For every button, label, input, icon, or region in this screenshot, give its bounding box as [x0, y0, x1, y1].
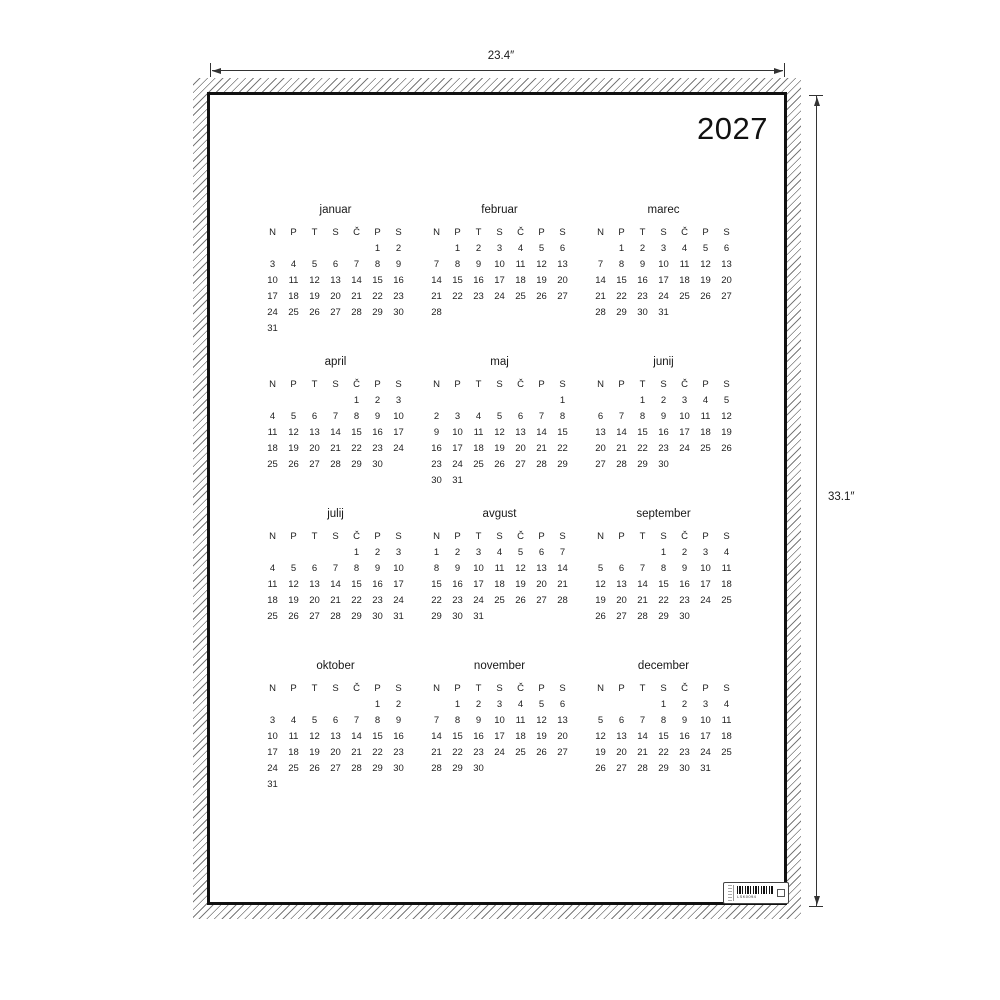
week-row: 9101112131415 — [426, 425, 573, 441]
day-cell: 10 — [489, 257, 510, 273]
day-cell: 16 — [468, 729, 489, 745]
day-cell: 17 — [447, 441, 468, 457]
empty-day-cell — [611, 545, 632, 561]
empty-day-cell — [304, 545, 325, 561]
day-cell: 23 — [367, 441, 388, 457]
week-row: 27282930 — [590, 457, 737, 473]
month-title: junij — [590, 355, 737, 369]
weekday-label: S — [552, 377, 573, 393]
week-row: 31 — [262, 777, 409, 793]
day-cell: 24 — [262, 761, 283, 777]
weekday-label: S — [388, 225, 409, 241]
day-cell: 20 — [552, 729, 573, 745]
day-cell: 20 — [325, 745, 346, 761]
day-cell: 18 — [510, 729, 531, 745]
day-cell: 19 — [283, 593, 304, 609]
day-cell: 15 — [611, 273, 632, 289]
day-cell: 22 — [653, 745, 674, 761]
day-cell: 26 — [304, 761, 325, 777]
day-cell: 1 — [611, 241, 632, 257]
day-cell: 6 — [531, 545, 552, 561]
day-cell: 21 — [346, 745, 367, 761]
barcode-icon — [737, 886, 774, 894]
day-cell: 3 — [695, 545, 716, 561]
weekday-label: S — [653, 377, 674, 393]
day-cell: 15 — [367, 729, 388, 745]
day-cell: 3 — [489, 697, 510, 713]
day-cell: 30 — [674, 761, 695, 777]
day-cell: 23 — [447, 593, 468, 609]
day-cell: 3 — [262, 713, 283, 729]
day-cell: 12 — [695, 257, 716, 273]
day-cell: 12 — [283, 577, 304, 593]
weekday-label: T — [632, 529, 653, 545]
day-cell: 6 — [611, 713, 632, 729]
week-row: 12345 — [590, 393, 737, 409]
weekday-header-row: NPTSČPS — [426, 529, 573, 545]
day-cell: 11 — [283, 729, 304, 745]
day-cell: 19 — [304, 289, 325, 305]
month-title: november — [426, 659, 573, 673]
weekday-label: S — [716, 681, 737, 697]
empty-day-cell — [304, 321, 325, 337]
empty-day-cell — [590, 545, 611, 561]
day-cell: 8 — [552, 409, 573, 425]
width-dimension-tick-right — [784, 63, 785, 77]
weekday-label: N — [262, 681, 283, 697]
week-row: 123456 — [426, 241, 573, 257]
weekday-label: N — [426, 529, 447, 545]
day-cell: 11 — [489, 561, 510, 577]
day-cell: 4 — [510, 241, 531, 257]
day-cell: 10 — [447, 425, 468, 441]
day-cell: 4 — [283, 713, 304, 729]
weekday-label: P — [447, 225, 468, 241]
day-cell: 18 — [262, 593, 283, 609]
weekday-label: T — [304, 681, 325, 697]
day-cell: 9 — [426, 425, 447, 441]
weekday-label: S — [716, 529, 737, 545]
week-row: 252627282930 — [262, 457, 409, 473]
day-cell: 28 — [632, 609, 653, 625]
day-cell: 7 — [632, 561, 653, 577]
day-cell: 2 — [468, 241, 489, 257]
week-row: 14151617181920 — [426, 273, 573, 289]
day-cell: 1 — [346, 393, 367, 409]
day-cell: 13 — [611, 729, 632, 745]
day-cell: 31 — [468, 609, 489, 625]
day-cell: 20 — [304, 441, 325, 457]
day-cell: 5 — [510, 545, 531, 561]
day-cell: 3 — [695, 697, 716, 713]
day-cell: 25 — [716, 593, 737, 609]
day-cell: 1 — [632, 393, 653, 409]
day-cell: 21 — [590, 289, 611, 305]
day-cell: 29 — [447, 761, 468, 777]
empty-day-cell — [510, 305, 531, 321]
empty-day-cell — [346, 321, 367, 337]
week-row: 45678910 — [262, 561, 409, 577]
day-cell: 16 — [674, 729, 695, 745]
weekday-label: Č — [674, 529, 695, 545]
weekday-label: Č — [674, 681, 695, 697]
month-title: oktober — [262, 659, 409, 673]
week-row: 123 — [262, 393, 409, 409]
day-cell: 18 — [262, 441, 283, 457]
weekday-label: S — [325, 225, 346, 241]
day-cell: 30 — [426, 473, 447, 489]
empty-day-cell — [447, 305, 468, 321]
day-cell: 22 — [426, 593, 447, 609]
week-row: 123456 — [590, 241, 737, 257]
day-cell: 14 — [531, 425, 552, 441]
empty-day-cell — [388, 777, 409, 793]
month-title: julij — [262, 507, 409, 521]
empty-day-cell — [674, 305, 695, 321]
empty-day-cell — [695, 305, 716, 321]
weekday-label: P — [447, 377, 468, 393]
day-cell: 14 — [346, 273, 367, 289]
day-cell: 21 — [426, 289, 447, 305]
day-cell: 24 — [489, 289, 510, 305]
week-row: 2345678 — [426, 409, 573, 425]
weekday-label: S — [325, 377, 346, 393]
week-row: 18192021222324 — [262, 593, 409, 609]
day-cell: 14 — [346, 729, 367, 745]
month-calendar-marec: marecNPTSČPS1234567891011121314151617181… — [590, 203, 737, 355]
day-cell: 15 — [447, 729, 468, 745]
weekday-label: Č — [674, 377, 695, 393]
day-cell: 27 — [531, 593, 552, 609]
day-cell: 7 — [426, 257, 447, 273]
day-cell: 28 — [611, 457, 632, 473]
day-cell: 30 — [367, 457, 388, 473]
day-cell: 10 — [262, 273, 283, 289]
empty-day-cell — [489, 305, 510, 321]
day-cell: 28 — [346, 761, 367, 777]
day-cell: 10 — [468, 561, 489, 577]
day-cell: 12 — [590, 577, 611, 593]
month-title: februar — [426, 203, 573, 217]
day-cell: 29 — [632, 457, 653, 473]
week-row: 12 — [262, 697, 409, 713]
day-cell: 12 — [489, 425, 510, 441]
day-cell: 4 — [489, 545, 510, 561]
day-cell: 17 — [489, 729, 510, 745]
day-cell: 13 — [716, 257, 737, 273]
weekday-label: T — [632, 681, 653, 697]
day-cell: 19 — [510, 577, 531, 593]
weekday-header-row: NPTSČPS — [262, 225, 409, 241]
month-title: avgust — [426, 507, 573, 521]
day-cell: 16 — [388, 729, 409, 745]
cert-mark-icon — [777, 889, 785, 897]
day-cell: 25 — [716, 745, 737, 761]
day-cell: 10 — [674, 409, 695, 425]
day-cell: 1 — [653, 697, 674, 713]
day-cell: 13 — [590, 425, 611, 441]
arrow-right-icon — [774, 68, 783, 74]
empty-day-cell — [510, 609, 531, 625]
day-cell: 25 — [283, 761, 304, 777]
day-cell: 29 — [653, 609, 674, 625]
week-row: 25262728293031 — [262, 609, 409, 625]
empty-day-cell — [262, 545, 283, 561]
empty-day-cell — [489, 393, 510, 409]
day-cell: 4 — [283, 257, 304, 273]
week-row: 3456789 — [262, 713, 409, 729]
weekday-label: P — [611, 377, 632, 393]
weekday-header-row: NPTSČPS — [426, 377, 573, 393]
empty-day-cell — [716, 457, 737, 473]
weekday-label: Č — [346, 529, 367, 545]
day-cell: 17 — [468, 577, 489, 593]
day-cell: 3 — [447, 409, 468, 425]
day-cell: 22 — [346, 593, 367, 609]
weekday-label: P — [283, 529, 304, 545]
day-cell: 12 — [304, 273, 325, 289]
day-cell: 29 — [367, 305, 388, 321]
calendar-poster: 2027 januarNPTSČPS1234567891011121314151… — [207, 92, 787, 905]
day-cell: 28 — [426, 761, 447, 777]
day-cell: 10 — [695, 713, 716, 729]
day-cell: 19 — [590, 593, 611, 609]
day-cell: 23 — [388, 289, 409, 305]
weekday-label: N — [590, 225, 611, 241]
day-cell: 11 — [262, 577, 283, 593]
day-cell: 22 — [632, 441, 653, 457]
day-cell: 7 — [632, 713, 653, 729]
week-row: 45678910 — [262, 409, 409, 425]
day-cell: 16 — [447, 577, 468, 593]
day-cell: 25 — [674, 289, 695, 305]
empty-day-cell — [468, 473, 489, 489]
weekday-label: N — [262, 529, 283, 545]
day-cell: 17 — [489, 273, 510, 289]
day-cell: 7 — [346, 713, 367, 729]
calendar-mockup-canvas: 23.4″ 33.1″ 2027 januarNPTSČPS1234567891… — [0, 0, 1000, 1000]
day-cell: 27 — [590, 457, 611, 473]
day-cell: 20 — [325, 289, 346, 305]
day-cell: 9 — [468, 257, 489, 273]
week-row: 13141516171819 — [590, 425, 737, 441]
weekday-label: T — [468, 225, 489, 241]
empty-day-cell — [510, 393, 531, 409]
day-cell: 30 — [447, 609, 468, 625]
day-cell: 7 — [531, 409, 552, 425]
day-cell: 7 — [552, 545, 573, 561]
day-cell: 17 — [695, 577, 716, 593]
week-row: 123456 — [426, 697, 573, 713]
day-cell: 14 — [426, 273, 447, 289]
week-row: 16171819202122 — [426, 441, 573, 457]
day-cell: 29 — [552, 457, 573, 473]
day-cell: 4 — [262, 561, 283, 577]
day-cell: 11 — [262, 425, 283, 441]
day-cell: 21 — [552, 577, 573, 593]
day-cell: 17 — [262, 289, 283, 305]
day-cell: 21 — [325, 593, 346, 609]
weekday-label: S — [653, 681, 674, 697]
empty-day-cell — [674, 457, 695, 473]
day-cell: 31 — [447, 473, 468, 489]
day-cell: 9 — [367, 409, 388, 425]
day-cell: 15 — [426, 577, 447, 593]
day-cell: 23 — [468, 745, 489, 761]
day-cell: 14 — [325, 425, 346, 441]
label-code: LSK0094 — [737, 894, 774, 900]
empty-day-cell — [325, 697, 346, 713]
weekday-header-row: NPTSČPS — [262, 377, 409, 393]
day-cell: 5 — [283, 561, 304, 577]
day-cell: 26 — [510, 593, 531, 609]
weekday-label: S — [552, 681, 573, 697]
empty-day-cell — [262, 393, 283, 409]
month-title: december — [590, 659, 737, 673]
day-cell: 6 — [611, 561, 632, 577]
day-cell: 14 — [552, 561, 573, 577]
day-cell: 30 — [632, 305, 653, 321]
weekday-label: S — [716, 225, 737, 241]
day-cell: 18 — [674, 273, 695, 289]
day-cell: 29 — [611, 305, 632, 321]
arrow-down-icon — [814, 896, 820, 905]
day-cell: 3 — [653, 241, 674, 257]
day-cell: 26 — [283, 609, 304, 625]
weekday-label: S — [489, 681, 510, 697]
week-row: 21222324252627 — [426, 289, 573, 305]
day-cell: 17 — [674, 425, 695, 441]
day-cell: 26 — [283, 457, 304, 473]
month-calendar-september: septemberNPTSČPS123456789101112131415161… — [590, 507, 737, 659]
week-row: 293031 — [426, 609, 573, 625]
day-cell: 2 — [468, 697, 489, 713]
height-dimension-label: 33.1″ — [824, 491, 858, 503]
day-cell: 8 — [632, 409, 653, 425]
day-cell: 9 — [653, 409, 674, 425]
weekday-label: S — [489, 225, 510, 241]
week-row: 12131415161718 — [590, 729, 737, 745]
day-cell: 28 — [426, 305, 447, 321]
weekday-label: P — [611, 225, 632, 241]
day-cell: 2 — [674, 545, 695, 561]
day-cell: 19 — [304, 745, 325, 761]
day-cell: 12 — [283, 425, 304, 441]
empty-day-cell — [468, 305, 489, 321]
day-cell: 4 — [695, 393, 716, 409]
day-cell: 15 — [447, 273, 468, 289]
month-calendar-februar: februarNPTSČPS12345678910111213141516171… — [426, 203, 573, 355]
month-title: marec — [590, 203, 737, 217]
weekday-label: Č — [346, 681, 367, 697]
day-cell: 21 — [426, 745, 447, 761]
day-cell: 30 — [388, 761, 409, 777]
day-cell: 8 — [367, 713, 388, 729]
weekday-label: S — [325, 681, 346, 697]
day-cell: 18 — [716, 729, 737, 745]
day-cell: 17 — [388, 577, 409, 593]
day-cell: 26 — [304, 305, 325, 321]
week-row: 28293031 — [590, 305, 737, 321]
empty-day-cell — [325, 393, 346, 409]
day-cell: 4 — [468, 409, 489, 425]
day-cell: 29 — [653, 761, 674, 777]
empty-day-cell — [346, 241, 367, 257]
month-title: april — [262, 355, 409, 369]
day-cell: 8 — [346, 561, 367, 577]
weekday-label: N — [590, 681, 611, 697]
week-row: 891011121314 — [426, 561, 573, 577]
label-middle: LSK0094 — [737, 886, 774, 900]
week-row: 19202122232425 — [590, 593, 737, 609]
day-cell: 1 — [367, 241, 388, 257]
empty-day-cell — [346, 777, 367, 793]
day-cell: 18 — [695, 425, 716, 441]
day-cell: 15 — [346, 425, 367, 441]
week-row: 3456789 — [262, 257, 409, 273]
empty-day-cell — [283, 393, 304, 409]
empty-day-cell — [716, 609, 737, 625]
weekday-label: P — [531, 377, 552, 393]
day-cell: 13 — [304, 577, 325, 593]
weekday-label: P — [695, 377, 716, 393]
week-row: 18192021222324 — [262, 441, 409, 457]
day-cell: 24 — [388, 441, 409, 457]
empty-day-cell — [695, 609, 716, 625]
week-row: 10111213141516 — [262, 729, 409, 745]
day-cell: 16 — [367, 577, 388, 593]
empty-day-cell — [552, 609, 573, 625]
weekday-label: P — [531, 529, 552, 545]
day-cell: 17 — [653, 273, 674, 289]
day-cell: 23 — [674, 593, 695, 609]
day-cell: 9 — [468, 713, 489, 729]
weekday-label: S — [552, 225, 573, 241]
day-cell: 31 — [262, 321, 283, 337]
day-cell: 25 — [468, 457, 489, 473]
day-cell: 7 — [325, 409, 346, 425]
day-cell: 27 — [611, 609, 632, 625]
weekday-label: S — [653, 225, 674, 241]
day-cell: 4 — [674, 241, 695, 257]
week-row: 282930 — [426, 761, 573, 777]
day-cell: 30 — [653, 457, 674, 473]
day-cell: 30 — [388, 305, 409, 321]
month-calendar-avgust: avgustNPTSČPS123456789101112131415161718… — [426, 507, 573, 659]
empty-day-cell — [283, 241, 304, 257]
day-cell: 16 — [674, 577, 695, 593]
day-cell: 15 — [632, 425, 653, 441]
day-cell: 27 — [611, 761, 632, 777]
day-cell: 19 — [489, 441, 510, 457]
weekday-label: Č — [510, 225, 531, 241]
empty-day-cell — [695, 457, 716, 473]
day-cell: 24 — [468, 593, 489, 609]
day-cell: 24 — [388, 593, 409, 609]
empty-day-cell — [531, 393, 552, 409]
day-cell: 31 — [388, 609, 409, 625]
day-cell: 9 — [674, 561, 695, 577]
product-label: LSK0094 — [723, 882, 789, 904]
empty-day-cell — [426, 697, 447, 713]
day-cell: 18 — [283, 289, 304, 305]
weekday-label: P — [367, 225, 388, 241]
week-row: 1234 — [590, 697, 737, 713]
year-title: 2027 — [697, 111, 768, 147]
day-cell: 16 — [388, 273, 409, 289]
empty-day-cell — [611, 393, 632, 409]
weekday-header-row: NPTSČPS — [426, 681, 573, 697]
